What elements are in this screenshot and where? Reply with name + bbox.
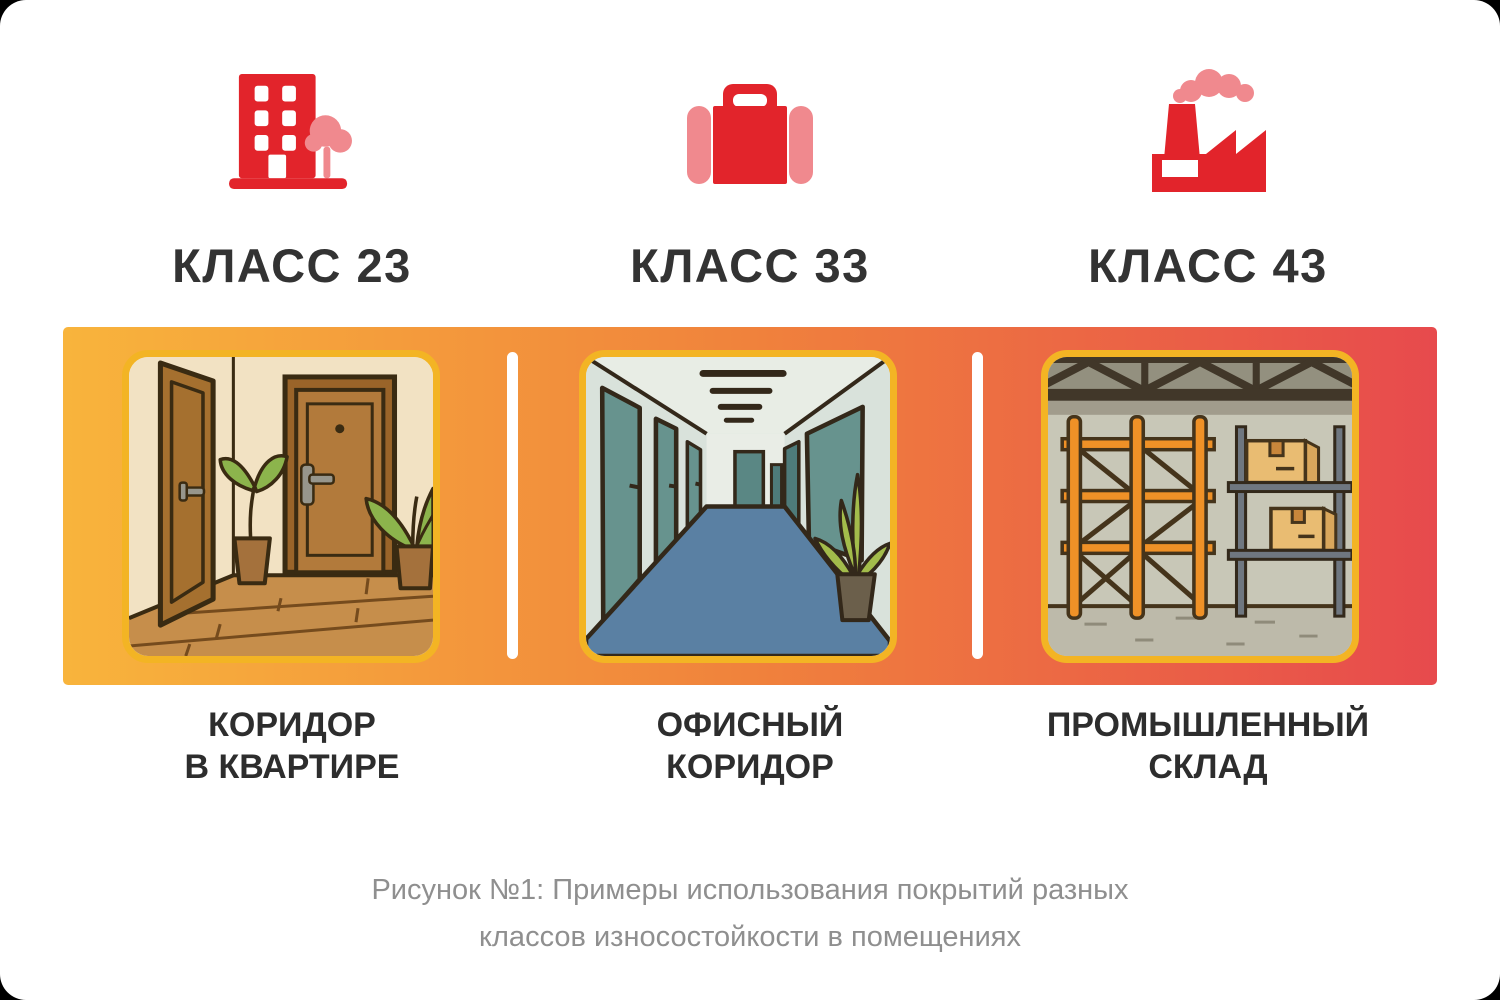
class-43-heading: КЛАСС 43: [1088, 238, 1328, 293]
warehouse-image: [1041, 350, 1359, 663]
gradient-band: [63, 327, 1437, 685]
briefcase-icon-svg: [687, 84, 813, 192]
column-class-23: КЛАСС 23: [63, 0, 521, 293]
column-class-33: КЛАСС 33: [521, 0, 979, 293]
column-class-43: КЛАСС 43: [979, 0, 1437, 293]
infographic-card: КЛАСС 23 КЛАСС 33: [0, 0, 1500, 1000]
open-door: [160, 363, 213, 625]
label-line: КОРИДОР: [521, 746, 979, 788]
class-23-heading: КЛАСС 23: [172, 238, 412, 293]
apartment-building-icon-svg: [228, 74, 356, 192]
infographic: КЛАСС 23 КЛАСС 33: [0, 0, 1500, 1000]
office-corridor-image: [579, 350, 897, 663]
apartment-corridor-image: [122, 350, 440, 663]
apartment-corridor-illustration: [129, 357, 433, 656]
label-industrial-warehouse: ПРОМЫШЛЕННЫЙ СКЛАД: [979, 704, 1437, 788]
divider-line-2: [972, 352, 983, 659]
divider-line-1: [507, 352, 518, 659]
industrial-warehouse-illustration: [1048, 357, 1352, 656]
label-line: СКЛАД: [979, 746, 1437, 788]
figure-caption: Рисунок №1: Примеры использования покрыт…: [0, 867, 1500, 961]
label-row: КОРИДОР В КВАРТИРЕ ОФИСНЫЙ КОРИДОР ПРОМЫ…: [63, 704, 1437, 788]
label-line: В КВАРТИРЕ: [63, 746, 521, 788]
class-33-heading: КЛАСС 33: [630, 238, 870, 293]
label-line: ОФИСНЫЙ: [521, 704, 979, 746]
cardboard-box-top: [1247, 441, 1319, 483]
label-apartment-corridor: КОРИДОР В КВАРТИРЕ: [63, 704, 521, 788]
briefcase-icon: [687, 68, 813, 192]
cardboard-box-bottom: [1271, 508, 1336, 550]
factory-icon: [1142, 68, 1274, 192]
closed-door: [285, 377, 394, 572]
factory-icon-svg: [1142, 66, 1274, 192]
caption-line-2: классов износостойкости в помещениях: [0, 914, 1500, 961]
office-corridor-illustration: [586, 357, 890, 656]
label-line: КОРИДОР: [63, 704, 521, 746]
caption-line-1: Рисунок №1: Примеры использования покрыт…: [0, 867, 1500, 914]
class-header-row: КЛАСС 23 КЛАСС 33: [63, 0, 1437, 293]
label-office-corridor: ОФИСНЫЙ КОРИДОР: [521, 704, 979, 788]
apartment-building-icon: [228, 68, 356, 192]
label-line: ПРОМЫШЛЕННЫЙ: [979, 704, 1437, 746]
